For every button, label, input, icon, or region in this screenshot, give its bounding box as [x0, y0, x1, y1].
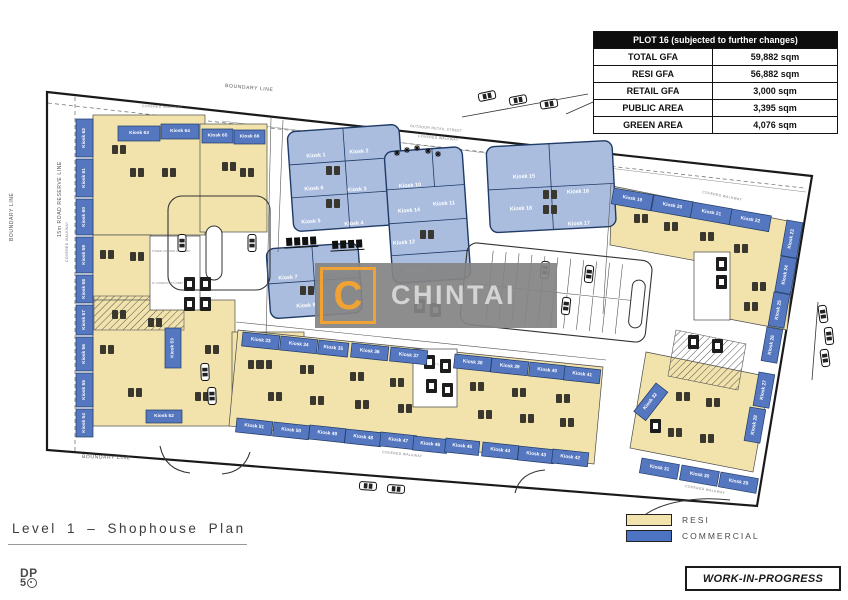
kiosk-65: Kiosk 65 — [202, 129, 233, 143]
kiosk-16: Kiosk 16 — [567, 188, 589, 195]
table-row: TOTAL GFA59,882 sqm — [594, 48, 837, 65]
kiosk-55: Kiosk 55 — [76, 373, 93, 407]
lift-core-icon — [440, 359, 451, 373]
dp50-circle-icon — [27, 578, 37, 588]
work-in-progress-label: WORK-IN-PROGRESS — [703, 573, 823, 585]
legend-label-commercial: COMMERCIAL — [682, 531, 760, 541]
plot-table-body: TOTAL GFA59,882 sqmRESI GFA56,882 sqmRET… — [594, 48, 837, 133]
car-icon — [359, 481, 377, 490]
lift-core-icon — [184, 277, 195, 291]
car-icon — [584, 265, 594, 283]
legend-item-resi: RESI — [626, 514, 760, 526]
car-icon — [201, 363, 210, 380]
car-icon — [178, 235, 186, 252]
svg-text:Kiosk 18: Kiosk 18 — [510, 205, 532, 212]
car-icon — [561, 297, 571, 315]
lift-core-icon — [442, 383, 453, 397]
traffic-island-left — [206, 226, 222, 280]
kiosk-31: Kiosk 31 — [639, 458, 679, 479]
lift-core-icon — [716, 257, 727, 271]
chintai-logo-icon: C — [320, 267, 376, 324]
kiosk-61: Kiosk 61 — [76, 159, 93, 197]
kiosk-17: Kiosk 17 — [568, 220, 590, 227]
shophouse-plan-page: BOUNDARY LINE BOUNDARY LINE BOUNDARY LIN… — [0, 0, 848, 600]
lift-core-icon — [716, 275, 727, 289]
boundary-label-top: BOUNDARY LINE — [225, 83, 274, 93]
kiosk-56: Kiosk 56 — [76, 337, 93, 371]
car-icon — [540, 99, 558, 110]
kiosk-66: Kiosk 66 — [234, 130, 265, 144]
svg-text:Kiosk 64: Kiosk 64 — [170, 128, 190, 134]
table-row-value: 3,395 sqm — [713, 103, 837, 113]
covered-walkway-label: COVERED WALKWAY — [702, 190, 743, 202]
lift-core-icon — [200, 297, 211, 311]
table-leader-line — [566, 102, 593, 114]
table-row-value: 4,076 sqm — [713, 120, 837, 130]
dp50-logo-row: 5 — [20, 578, 38, 588]
svg-text:Kiosk 61: Kiosk 61 — [81, 168, 87, 188]
table-row: GREEN AREA4,076 sqm — [594, 116, 837, 133]
lift-core-icon — [426, 379, 437, 393]
tree-icon — [414, 145, 420, 151]
tree-icon — [435, 151, 441, 157]
resi-color-swatch — [626, 514, 672, 526]
covered-walkway-label: COVERED WALKWAY — [142, 104, 183, 109]
car-icon — [248, 235, 256, 252]
title-underline — [8, 544, 247, 545]
covered-walkway-label: COVERED WALKWAY — [418, 134, 459, 142]
table-row: RETAIL GFA3,000 sqm — [594, 82, 837, 99]
lift-lobby-label: 1F COMMON LIFT LOBBY — [152, 281, 183, 285]
external-road-right — [812, 302, 818, 380]
kiosk-53: Kiosk 53 — [165, 328, 181, 368]
svg-text:Kiosk 57: Kiosk 57 — [81, 310, 87, 330]
lift-core-icon — [712, 339, 723, 353]
table-row-label: RESI GFA — [594, 66, 713, 82]
car-icon — [478, 90, 496, 101]
car-icon — [820, 349, 830, 367]
drawing-title-block: Level 1 – Shophouse Plan — [12, 521, 246, 536]
svg-text:Kiosk 15: Kiosk 15 — [513, 173, 535, 180]
svg-text:Kiosk 65: Kiosk 65 — [208, 133, 228, 139]
table-row: RESI GFA56,882 sqm — [594, 65, 837, 82]
lift-core-icon — [200, 277, 211, 291]
car-icon — [818, 305, 828, 323]
svg-text:Kiosk 62: Kiosk 62 — [81, 128, 87, 148]
street-line — [278, 120, 283, 252]
page-title: Level 1 – Shophouse Plan — [12, 521, 246, 536]
svg-text:Kiosk 55: Kiosk 55 — [81, 380, 87, 400]
plan-legend: RESI COMMERCIAL — [626, 514, 760, 546]
car-icon — [387, 484, 405, 493]
table-row-value: 56,882 sqm — [713, 69, 837, 79]
commercial-block-d — [486, 140, 616, 232]
kiosk-64: Kiosk 64 — [161, 124, 199, 139]
work-in-progress-stamp: WORK-IN-PROGRESS — [685, 566, 841, 591]
table-row: PUBLIC AREA3,395 sqm — [594, 99, 837, 116]
tree-icon — [404, 147, 410, 153]
lift-core-icon — [650, 419, 661, 433]
svg-text:Kiosk 16: Kiosk 16 — [567, 188, 589, 195]
kiosk-15: Kiosk 15 — [513, 173, 535, 180]
lift-core-icon — [688, 335, 699, 349]
svg-text:Kiosk 52: Kiosk 52 — [154, 413, 174, 419]
table-row-label: PUBLIC AREA — [594, 100, 713, 116]
svg-text:Kiosk 66: Kiosk 66 — [240, 134, 260, 140]
legend-label-resi: RESI — [682, 515, 710, 525]
table-row-value: 59,882 sqm — [713, 52, 837, 62]
car-icon — [208, 387, 217, 404]
svg-text:Kiosk 59: Kiosk 59 — [81, 245, 87, 265]
covered-walkway-label: COVERED WALKWAY — [382, 450, 423, 458]
table-row-label: TOTAL GFA — [594, 49, 713, 65]
dp50-number: 5 — [20, 578, 26, 588]
table-row-label: GREEN AREA — [594, 117, 713, 133]
table-row-label: RETAIL GFA — [594, 83, 713, 99]
legend-item-commercial: COMMERCIAL — [626, 530, 760, 542]
road-reserve-label: 15m ROAD RESERVE LINE — [57, 161, 63, 237]
car-icon — [824, 327, 834, 345]
plot-info-table: PLOT 16 (subjected to further changes) T… — [593, 31, 838, 134]
boundary-label-left: BOUNDARY LINE — [9, 192, 15, 241]
kiosk-52: Kiosk 52 — [146, 410, 182, 423]
svg-text:Kiosk 58: Kiosk 58 — [81, 279, 87, 299]
covered-walkway-label: COVERED WALKWAY — [65, 221, 69, 262]
tree-icon — [394, 150, 400, 156]
svg-text:Kiosk 63: Kiosk 63 — [129, 130, 149, 136]
svg-text:Kiosk 60: Kiosk 60 — [81, 207, 87, 227]
chintai-wordmark: CHINTAI — [391, 280, 516, 311]
kiosk-18: Kiosk 18 — [510, 205, 532, 212]
kiosk-54: Kiosk 54 — [76, 409, 93, 437]
kiosk-63: Kiosk 63 — [118, 126, 160, 141]
plot-table-title: PLOT 16 (subjected to further changes) — [594, 32, 837, 48]
car-icon — [509, 94, 527, 105]
table-row-value: 3,000 sqm — [713, 86, 837, 96]
dp-architects-logo: DP 5 — [20, 568, 38, 588]
kiosk-58: Kiosk 58 — [76, 275, 93, 303]
tree-icon — [425, 148, 431, 154]
kiosk-59: Kiosk 59 — [76, 237, 93, 273]
svg-text:Kiosk 53: Kiosk 53 — [170, 338, 176, 358]
kiosk-35: Kiosk 35 — [318, 340, 349, 357]
chintai-logo-letter: C — [334, 276, 363, 316]
chintai-watermark: C CHINTAI — [315, 263, 557, 328]
svg-text:Kiosk 56: Kiosk 56 — [81, 344, 87, 364]
lift-core-icon — [184, 297, 195, 311]
kiosk-57: Kiosk 57 — [76, 305, 93, 335]
kiosk-26: Kiosk 26 — [761, 327, 783, 363]
kiosk-60: Kiosk 60 — [76, 199, 93, 235]
kiosk-62: Kiosk 62 — [76, 119, 93, 157]
boundary-label-bottom: BOUNDARY LINE — [82, 454, 131, 461]
driveway-curve — [222, 452, 250, 474]
traffic-island-central — [628, 279, 646, 328]
commercial-color-swatch — [626, 530, 672, 542]
svg-text:Kiosk 54: Kiosk 54 — [81, 413, 87, 433]
svg-text:Kiosk 17: Kiosk 17 — [568, 220, 590, 227]
